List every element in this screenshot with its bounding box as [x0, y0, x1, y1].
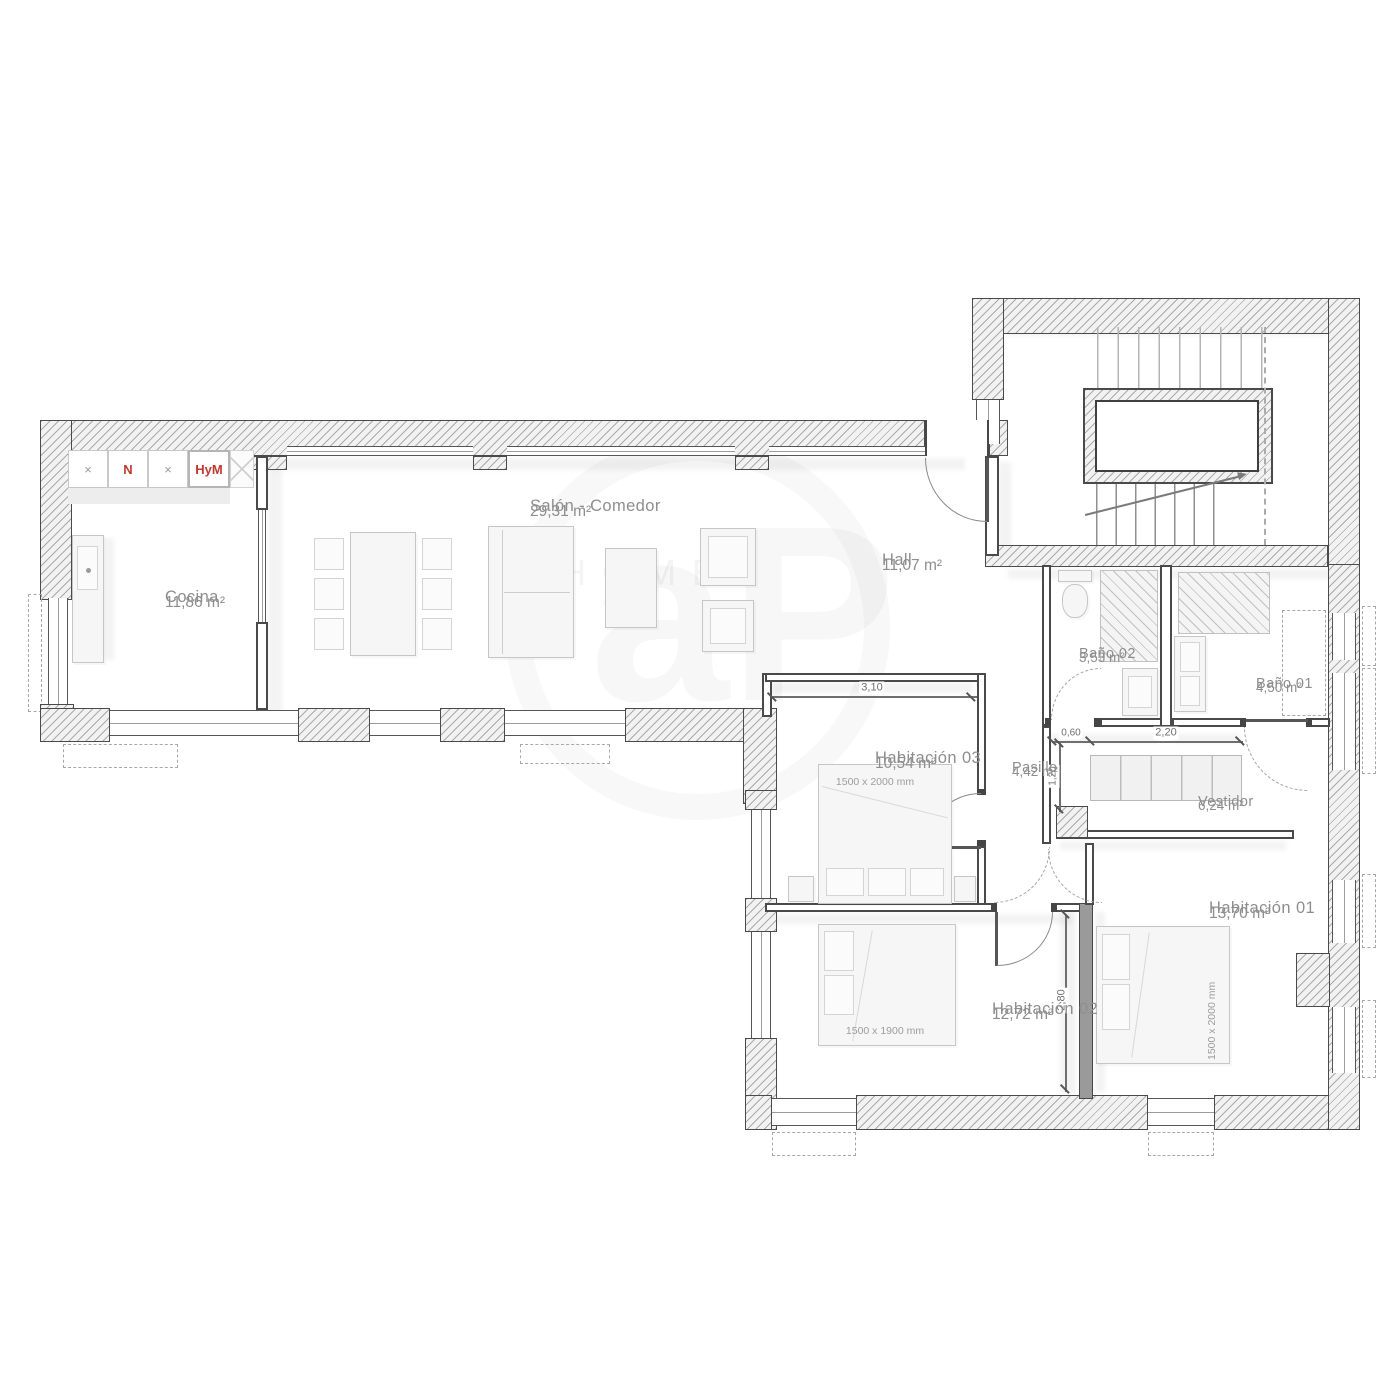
room-area: 13,70 m²: [1209, 905, 1270, 923]
room-area: 6,24 m²: [1198, 798, 1244, 813]
hab01-door-arc: [994, 847, 1050, 903]
room-area: 11,86 m²: [165, 594, 225, 612]
sofa-seat-line: [504, 592, 570, 593]
door-jamb: [991, 903, 997, 912]
kitchen-cabinet-x1: ×: [68, 450, 108, 488]
window-sill: [1362, 606, 1376, 666]
kitchen-corner-cabinet: [230, 450, 254, 488]
window-sill: [1362, 668, 1376, 774]
shower-bano01: [1178, 572, 1270, 634]
entrance-gap: [925, 420, 989, 456]
wall-left: [40, 420, 72, 600]
nightstand: [954, 876, 976, 902]
room-area: 10,54 m²: [875, 755, 936, 773]
balcony-sill: [63, 744, 178, 768]
wall-bottom-wing: [745, 1095, 772, 1130]
window: [287, 446, 473, 456]
bano-divider: [1160, 565, 1172, 727]
window-bano01: [1332, 613, 1356, 660]
bano02-wall-left: [1042, 565, 1051, 726]
kitchen-appliance-hym: HyM: [188, 450, 230, 488]
staircase-lower-flight: [1078, 484, 1228, 545]
kitchen-appliance-n: N: [108, 450, 148, 488]
room-area: 4,50 m²: [1256, 680, 1302, 695]
window-sill: [28, 594, 42, 712]
stair-wall-left: [972, 298, 1004, 400]
armchair-cushion: [708, 536, 748, 578]
wall-bottom: [298, 708, 370, 742]
kitchen-counter-edge: [68, 488, 230, 504]
bano01-door-leaf: [1246, 719, 1308, 722]
balcony-sill: [1148, 1132, 1214, 1156]
door-jamb: [1051, 903, 1057, 912]
dining-chair: [314, 618, 344, 650]
dim-line-hab03: [772, 696, 977, 698]
shower-tray-dashed: [1282, 610, 1326, 716]
wall-bottom-wing: [856, 1095, 1148, 1130]
window-kitchen: [48, 598, 68, 708]
stair-void: [1095, 400, 1259, 472]
kitchen-faucet: [86, 568, 91, 573]
armchair-cushion: [710, 608, 746, 644]
room-area: 11,07 m²: [882, 557, 942, 575]
wall-bottom: [440, 708, 505, 742]
window-hab03: [751, 810, 771, 898]
bed-size-hab01: 1500 x 2000 mm: [1206, 940, 1218, 1060]
vestidor-wall-bottom: [1056, 830, 1294, 839]
wall-bottom: [40, 708, 110, 742]
bano01-wall-bottom: [1172, 718, 1246, 727]
pillow: [868, 868, 906, 896]
kitchen-partition: [256, 456, 268, 510]
pillow: [1102, 934, 1130, 980]
window-hab01: [1332, 880, 1356, 943]
hab03-wall-right-low: [977, 846, 986, 908]
bed-size-hab02: 1500 x 1900 mm: [846, 1025, 924, 1037]
window: [110, 710, 298, 736]
balcony-sill: [520, 744, 610, 764]
window: [505, 710, 625, 736]
hab03-wall-right: [977, 673, 986, 795]
window-sill: [1362, 1000, 1376, 1078]
dining-chair: [422, 618, 452, 650]
room-area: 12,72 m²: [992, 1006, 1053, 1024]
bed-size-hab03: 1500 x 2000 mm: [836, 776, 914, 788]
dim-line-vestidor: [1052, 741, 1243, 743]
window: [370, 710, 440, 736]
dining-table: [350, 532, 416, 656]
sink-basin: [1128, 676, 1152, 708]
stair-wall-bottom: [985, 545, 1328, 567]
dining-chair: [422, 538, 452, 570]
sink-basin: [1180, 642, 1200, 672]
room-area: 3,53 m²: [1079, 650, 1125, 665]
entrance-door-arc: [925, 458, 987, 522]
dim-vestidor-width: 2,20: [1153, 727, 1178, 740]
pillar: [473, 456, 507, 470]
pillow: [824, 931, 854, 971]
balcony-sill: [772, 1132, 856, 1156]
shadow: [268, 468, 282, 712]
vestidor-door-arc: [1048, 849, 1102, 903]
wall-bottom: [625, 708, 745, 742]
window-hab02: [751, 932, 771, 1038]
kitchen-cabinet-x2: ×: [148, 450, 188, 488]
pillow: [824, 975, 854, 1015]
dim-hab03-width: 3,10: [859, 682, 884, 695]
dining-chair: [314, 538, 344, 570]
pillow: [1102, 984, 1130, 1030]
hab02-door-arc: [997, 912, 1053, 966]
sink-basin: [1180, 676, 1200, 706]
window: [769, 446, 925, 456]
window-bano01b: [1332, 673, 1356, 770]
toilet-bowl: [1062, 584, 1088, 618]
stair-rail-dashed: [1264, 327, 1266, 545]
toilet-tank: [1058, 570, 1092, 582]
staircase-upper-flight: [1078, 327, 1266, 389]
dim-pasillo-width: 0,60: [1059, 727, 1082, 740]
pillow: [826, 868, 864, 896]
coffee-table: [605, 548, 657, 628]
pillar: [735, 456, 769, 470]
window-sill: [1362, 874, 1376, 948]
hab02-wall-top: [765, 903, 997, 912]
floor-plan: HOMES aP: [0, 0, 1400, 1400]
nightstand: [788, 876, 814, 902]
window: [507, 446, 735, 456]
stair-wall-right: [1328, 298, 1360, 565]
kitchen-slider: [258, 510, 266, 622]
dining-chair: [422, 578, 452, 610]
sofa-back-line: [502, 530, 503, 654]
dining-chair: [314, 578, 344, 610]
kitchen-partition: [256, 622, 268, 710]
bano02-door-arc: [1051, 668, 1101, 720]
window-hab02-s: [772, 1098, 856, 1126]
bano01-door-arc: [1244, 727, 1308, 791]
room-area: 4,42 m²: [1012, 764, 1058, 779]
window-hab01-s: [1148, 1098, 1214, 1126]
pillow: [910, 868, 944, 896]
wall-left-wing: [745, 790, 777, 810]
room-area: 29,31 m²: [530, 503, 591, 521]
shadow: [104, 538, 114, 660]
window-hab01b: [1332, 1007, 1356, 1073]
bano01-wall-bottom-piece: [1310, 718, 1330, 727]
wall-niche: [1296, 953, 1330, 1007]
